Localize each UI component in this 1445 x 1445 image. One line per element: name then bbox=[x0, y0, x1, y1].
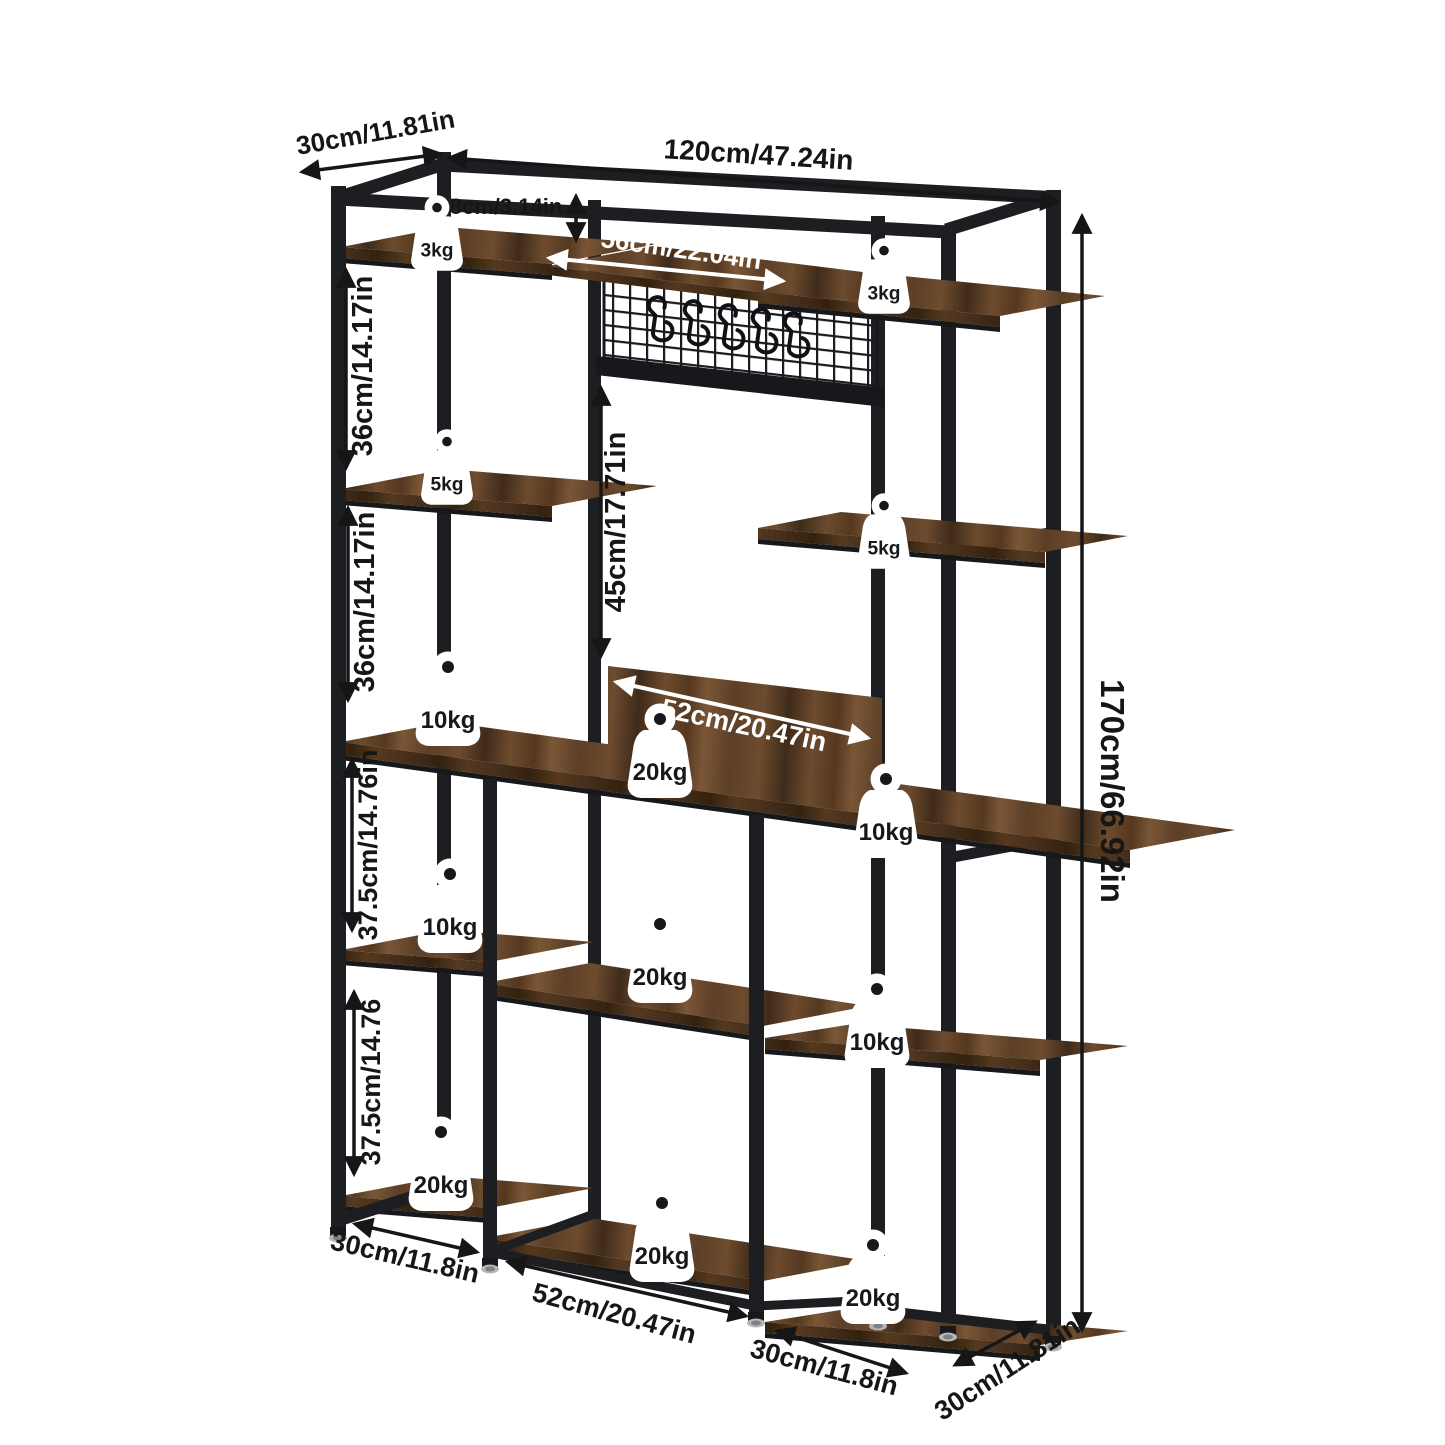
svg-text:20kg: 20kg bbox=[414, 1172, 469, 1199]
weight-badge: 20kg bbox=[628, 909, 693, 1004]
left-middle-label: 36cm/14.17in bbox=[349, 512, 381, 693]
weight-badge: 5kg bbox=[421, 429, 473, 505]
post-mid-left bbox=[588, 200, 601, 1220]
svg-text:10kg: 10kg bbox=[859, 819, 914, 846]
top-width-label: 120cm/47.24in bbox=[663, 133, 854, 176]
svg-text:20kg: 20kg bbox=[633, 964, 688, 991]
left-lower1-label: 37.5cm/14.76in bbox=[353, 750, 383, 941]
weight-badge: 10kg bbox=[416, 652, 481, 747]
leveling-foot bbox=[747, 1312, 765, 1328]
leveling-foot bbox=[939, 1326, 957, 1342]
post-lower-unit-left bbox=[483, 779, 497, 1260]
post-left-front bbox=[331, 186, 346, 1227]
weight-badge: 5kg bbox=[858, 493, 910, 569]
svg-text:10kg: 10kg bbox=[850, 1029, 905, 1056]
svg-text:5kg: 5kg bbox=[430, 474, 463, 495]
svg-text:10kg: 10kg bbox=[423, 914, 478, 941]
svg-text:3kg: 3kg bbox=[867, 283, 900, 304]
top-left-depth-rail bbox=[340, 163, 447, 197]
total-height-label: 170cm/66.92in bbox=[1094, 679, 1131, 903]
weight-badge: 20kg bbox=[409, 1117, 474, 1212]
leveling-foot bbox=[481, 1258, 499, 1274]
left-lower2-label: 37.5cm/14.76 bbox=[356, 999, 386, 1166]
weight-badge: 3kg bbox=[858, 238, 910, 314]
weight-badge: 20kg bbox=[841, 1230, 906, 1325]
post-right-back bbox=[1046, 190, 1061, 1336]
svg-text:3kg: 3kg bbox=[420, 240, 453, 261]
left-upper-label: 36cm/14.17in bbox=[347, 276, 379, 457]
product-dimension-diagram: 52cm/20.47in bbox=[0, 0, 1445, 1445]
svg-text:10kg: 10kg bbox=[421, 707, 476, 734]
svg-text:20kg: 20kg bbox=[846, 1285, 901, 1312]
post-right-front bbox=[941, 226, 956, 1328]
bakers-rack-diagram: 52cm/20.47in bbox=[0, 0, 1445, 1445]
svg-text:20kg: 20kg bbox=[635, 1243, 690, 1270]
weight-badge: 20kg bbox=[630, 1188, 695, 1283]
center-opening-label: 45cm/17.71in bbox=[600, 432, 632, 613]
svg-text:20kg: 20kg bbox=[633, 759, 688, 786]
weight-badge: 10kg bbox=[418, 859, 483, 954]
top-depth-label: 30cm/11.81in bbox=[294, 103, 457, 160]
weight-badge: 10kg bbox=[845, 974, 910, 1069]
lower-right-shelf bbox=[765, 1024, 1128, 1076]
post-lower-unit-right bbox=[749, 815, 764, 1314]
svg-text:5kg: 5kg bbox=[867, 538, 900, 559]
top-shelf-gap-label: 8cm/3.14in bbox=[450, 194, 563, 219]
